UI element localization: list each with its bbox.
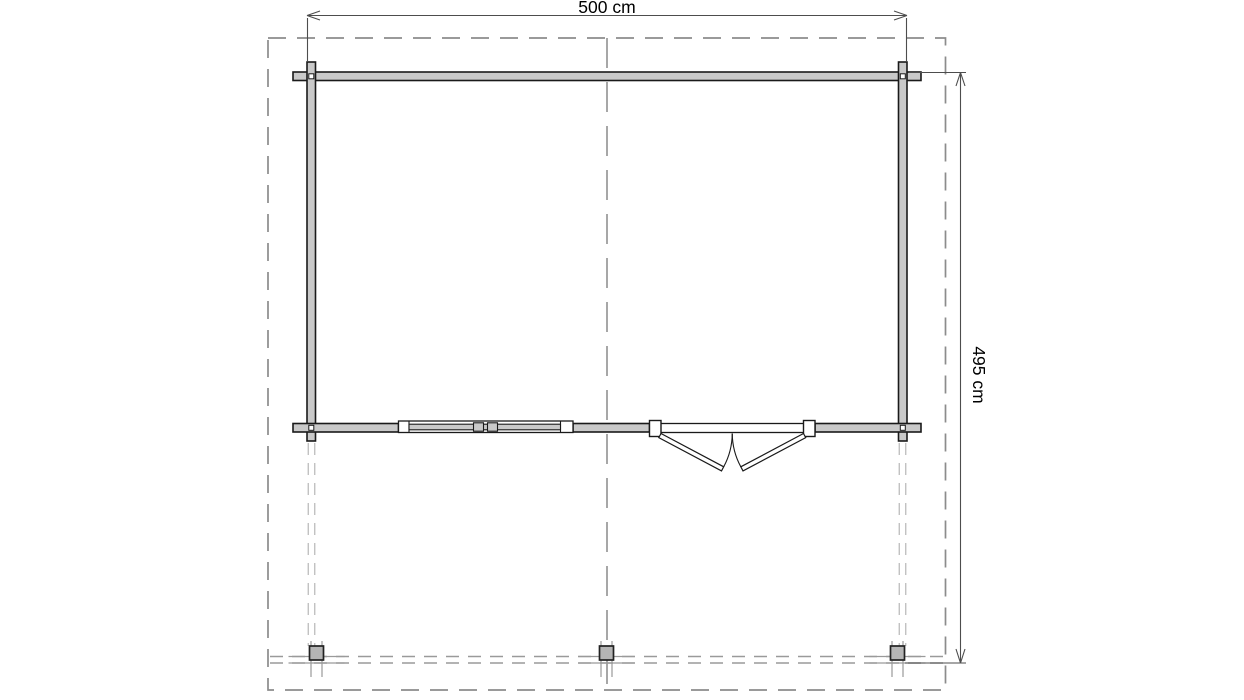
exterior-walls [293,62,921,441]
terrace-post-left [310,646,324,660]
door-opening [655,424,810,433]
terrace-post-center [600,646,614,660]
window-sash [409,424,561,430]
dimension-depth: 495 cm [905,73,989,664]
door-leaf-right [741,434,806,471]
wall-right [899,62,908,441]
door-swing-arc-right [732,434,741,467]
window-mullion-left [474,423,484,431]
corner-joint-bottom-left [309,425,314,430]
wall-top [293,72,921,81]
terrace-post-right [891,646,905,660]
width-dimension-label: 500 cm [578,0,635,17]
wall-left [307,62,316,441]
corner-joint-top-left [309,74,314,79]
floor-plan-drawing: 500 cm 495 cm [0,0,1244,700]
double-door [650,421,816,471]
door-jamb-right [804,421,816,437]
window-mullion-right [488,423,498,431]
corner-joint-bottom-right [900,425,905,430]
wall-bottom-middle-segment [573,424,650,433]
corner-joint-top-right [900,74,905,79]
depth-dimension-label: 495 cm [969,346,989,403]
window [399,421,574,433]
door-jamb-left [650,421,662,437]
door-swing-arc-left [724,434,733,467]
door-leaf-left [659,434,724,471]
floor-plan-canvas: 500 cm 495 cm [0,0,1244,700]
